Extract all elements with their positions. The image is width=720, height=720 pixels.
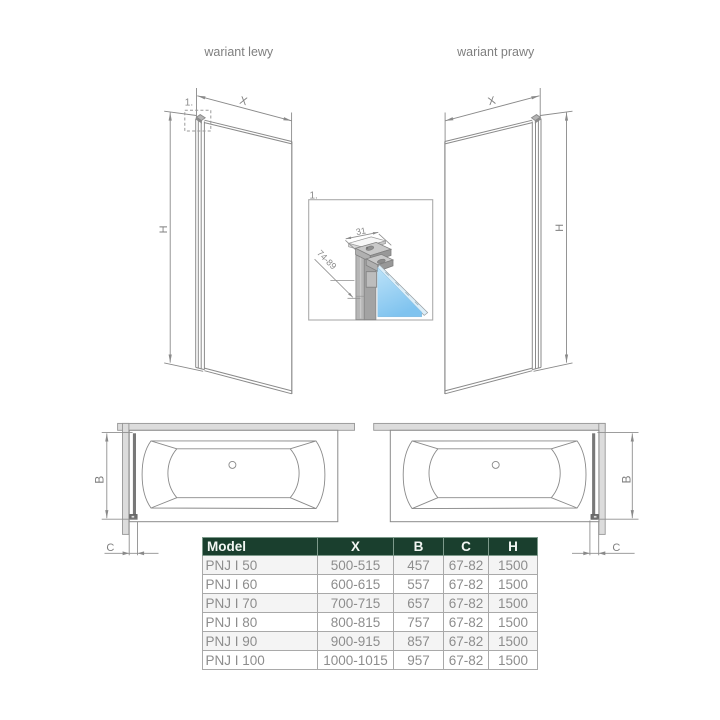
svg-text:H: H	[158, 225, 170, 233]
svg-text:C: C	[106, 542, 114, 554]
svg-text:X: X	[487, 94, 498, 108]
svg-text:B: B	[93, 476, 107, 484]
svg-text:B: B	[620, 475, 634, 483]
svg-text:31: 31	[355, 225, 367, 237]
svg-text:wariant lewy: wariant lewy	[203, 45, 274, 59]
svg-text:1.: 1.	[185, 98, 193, 109]
svg-text:C: C	[612, 542, 620, 554]
svg-text:1.: 1.	[310, 191, 318, 202]
svg-text:wariant prawy: wariant prawy	[456, 45, 535, 59]
svg-text:X: X	[238, 95, 249, 109]
svg-text:H: H	[554, 224, 566, 232]
